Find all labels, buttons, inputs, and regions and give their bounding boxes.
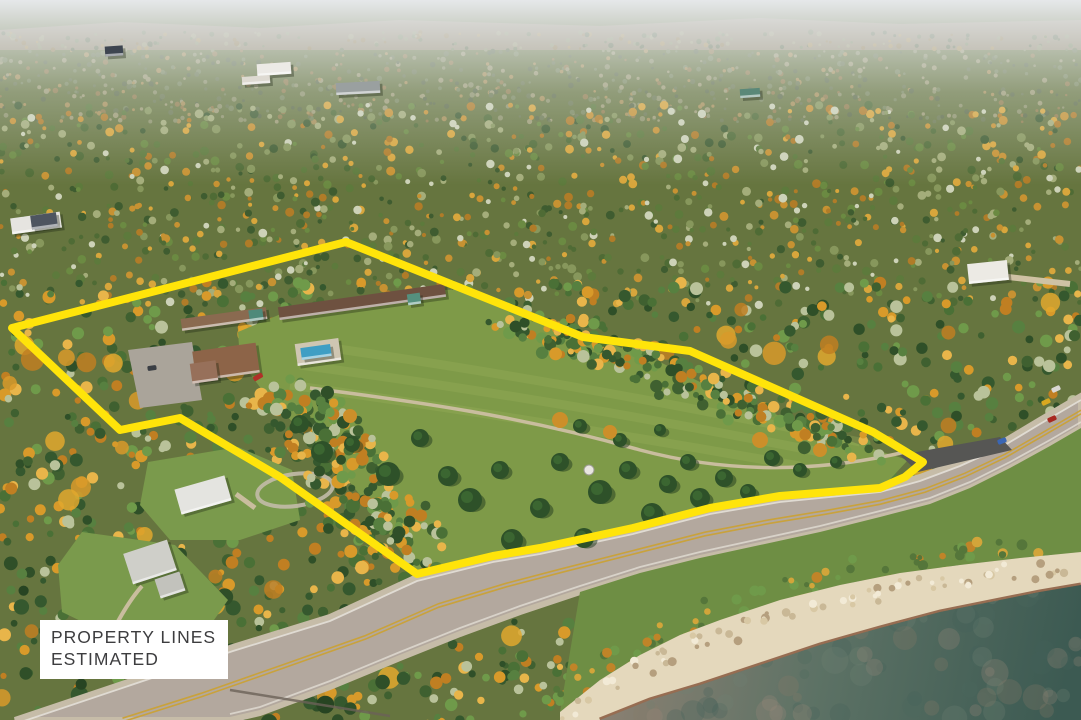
disclaimer-line-2: ESTIMATED (51, 648, 216, 670)
aerial-photo: PROPERTY LINES ESTIMATED (0, 0, 1081, 720)
main-house-gable (190, 360, 221, 387)
neighbor-white-house (967, 260, 1012, 287)
estimate-disclaimer-label: PROPERTY LINES ESTIMATED (40, 620, 228, 679)
distant-gray-building (336, 81, 383, 98)
aerial-photo-canvas (0, 0, 1081, 720)
distant-white-building-2 (242, 75, 273, 88)
disclaimer-line-1: PROPERTY LINES (51, 626, 216, 648)
atmospheric-haze (0, 0, 1081, 185)
distant-teal-cabin (740, 88, 763, 102)
